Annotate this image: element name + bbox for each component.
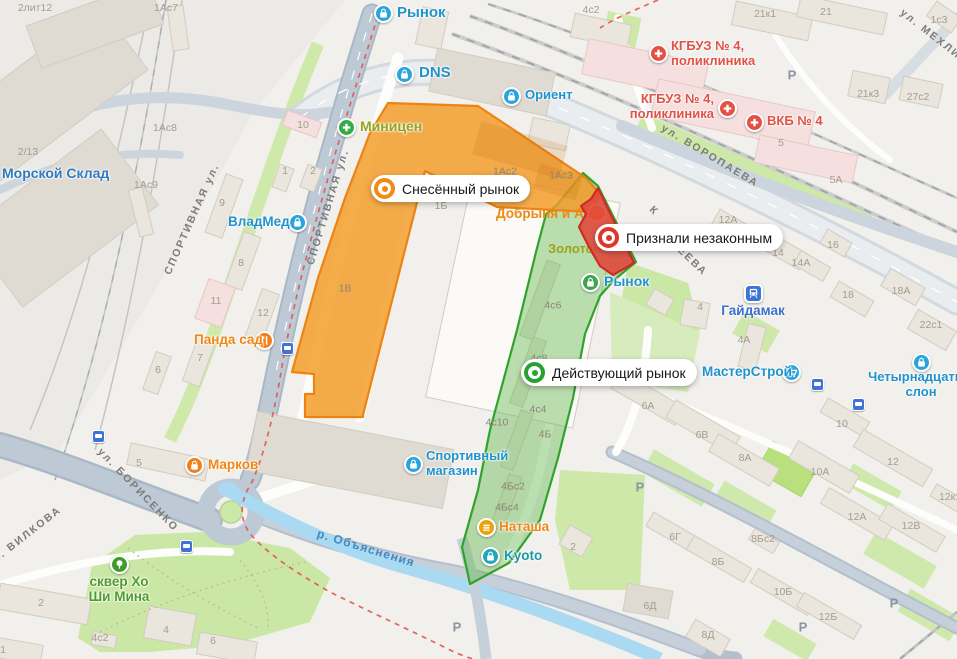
minitsen-icon[interactable] — [337, 118, 356, 137]
parking-label: Р — [890, 596, 899, 611]
target-icon — [598, 227, 619, 248]
house-number: 22с1 — [920, 319, 943, 331]
vladmed-icon[interactable] — [288, 213, 307, 232]
house-number: 2 — [38, 597, 44, 609]
morskoy-sklad-label[interactable]: Морской Склад — [2, 166, 109, 182]
house-number: 5 — [136, 457, 142, 469]
parking-label: Р — [636, 480, 645, 495]
house-number: 4с2 — [583, 4, 600, 16]
target-icon — [374, 178, 395, 199]
house-number: 16 — [827, 239, 839, 251]
building — [680, 299, 710, 329]
map-base-layer: 1Ас21Ас31В4с64с84с44с104Б4Бс24Бс4Добрыня… — [0, 0, 957, 659]
callout-label: Снесённый рынок — [402, 181, 519, 197]
house-number: 12 — [887, 456, 899, 468]
operating-market-callout[interactable]: Действующий рынок — [521, 359, 697, 386]
house-number: 2 — [570, 541, 576, 553]
house-number: 5 — [778, 137, 784, 149]
house-number: 11 — [211, 295, 222, 307]
ho-chi-minh-park-label[interactable]: сквер ХоШи Мина — [89, 574, 150, 604]
house-number: 12к1 — [939, 491, 957, 503]
orient-label[interactable]: Ориент — [525, 88, 573, 103]
house-number: 4Бс2 — [501, 481, 525, 493]
panda-sad-label[interactable]: Панда сад — [194, 332, 263, 347]
minitsen-label[interactable]: Миницен — [360, 119, 422, 135]
house-number: 6Г — [669, 531, 681, 543]
house-number: 10 — [297, 119, 309, 131]
market-top-icon[interactable] — [374, 4, 393, 23]
house-number: 8Бс2 — [751, 533, 775, 545]
kgbuz-4-upper-label[interactable]: КГБУЗ № 4,поликлиника — [671, 39, 755, 68]
house-number: 6Д — [644, 600, 657, 612]
house-number: 4 — [163, 624, 169, 636]
bus-stop-icon[interactable] — [852, 398, 865, 411]
house-number: 10А — [811, 466, 830, 478]
house-number: 1Ас9 — [134, 179, 158, 191]
house-number: 8А — [739, 452, 752, 464]
target-icon — [524, 362, 545, 383]
kgbuz-4-lower-icon[interactable] — [718, 99, 737, 118]
house-number: 4с2 — [92, 632, 109, 644]
house-number: 2/13 — [18, 146, 38, 158]
dns-label[interactable]: DNS — [419, 65, 451, 82]
house-number: 8 — [238, 257, 244, 269]
house-number: 4с6 — [545, 300, 562, 312]
vkb-4-label[interactable]: ВКБ № 4 — [767, 114, 823, 129]
house-number: 1Ас7 — [154, 2, 178, 14]
gaydamak-station-icon[interactable] — [744, 284, 763, 303]
house-number: 14А — [792, 257, 811, 269]
house-number: 12В — [902, 520, 921, 532]
map-canvas[interactable]: 1Ас21Ас31В4с64с84с44с104Б4Бс24Бс4Добрыня… — [0, 0, 957, 659]
house-number: 18А — [892, 285, 911, 297]
house-number: 21к1 — [754, 8, 776, 20]
house-number: 12 — [257, 307, 269, 319]
house-number: 1Ас3 — [549, 170, 573, 182]
market-top-label[interactable]: Рынок — [397, 5, 446, 22]
house-number: 6В — [696, 429, 709, 441]
house-number: 4с10 — [486, 417, 509, 429]
house-number: 6А — [642, 400, 655, 412]
ho-chi-minh-park-icon[interactable] — [110, 555, 129, 574]
house-number: 21к3 — [857, 88, 879, 100]
house-number: 1 — [0, 644, 6, 656]
house-number: 1 — [282, 165, 288, 177]
markov-icon[interactable] — [185, 456, 204, 475]
house-number: 8Б — [712, 556, 725, 568]
house-number: 27с2 — [907, 91, 930, 103]
callout-label: Признали незаконным — [626, 230, 772, 246]
sport-store-icon[interactable] — [404, 455, 423, 474]
parking-label: Р — [799, 620, 808, 635]
kgbuz-4-lower-label[interactable]: КГБУЗ № 4,поликлиника — [630, 92, 714, 121]
house-number: 9 — [219, 197, 225, 209]
fourteenth-slon-label[interactable]: Четырнадцатыйслон — [868, 370, 957, 399]
house-number: 1с3 — [931, 14, 948, 26]
orient-icon[interactable] — [502, 87, 521, 106]
callout-label: Действующий рынок — [552, 365, 686, 381]
house-number: 6 — [155, 364, 161, 376]
kgbuz-4-upper-icon[interactable] — [649, 44, 668, 63]
house-number: 1Ас8 — [153, 122, 177, 134]
house-number: 1В — [339, 283, 352, 295]
vladmed-label[interactable]: ВладМед — [228, 214, 290, 229]
parking-label: Р — [788, 68, 797, 83]
dns-icon[interactable] — [395, 65, 414, 84]
house-number: 7 — [197, 352, 203, 364]
kyoto-icon[interactable] — [481, 547, 500, 566]
house-number: 8Д — [702, 629, 715, 641]
vkb-4-icon[interactable] — [745, 113, 764, 132]
house-number: 4с4 — [530, 404, 547, 416]
masterstroy-label[interactable]: МастерСтрой — [702, 364, 792, 379]
house-number: 4Б — [539, 429, 552, 441]
market-center-label[interactable]: Рынок — [604, 274, 649, 290]
natasha-icon[interactable] — [477, 518, 496, 537]
bus-stop-icon[interactable] — [92, 430, 105, 443]
house-number: 4Бс4 — [495, 502, 519, 514]
demolished-market-callout[interactable]: Снесённый рынок — [371, 175, 530, 202]
kyoto-label[interactable]: Kyoto — [504, 548, 542, 563]
parking-label: Р — [453, 620, 462, 635]
house-number: 6 — [210, 635, 216, 647]
bus-stop-icon[interactable] — [180, 540, 193, 553]
market-center-icon[interactable] — [581, 273, 600, 292]
house-number: 21 — [820, 6, 832, 18]
bus-stop-icon[interactable] — [811, 378, 824, 391]
house-number: 2лит12 — [18, 2, 52, 14]
markov-label[interactable]: Марков — [208, 457, 258, 472]
house-number: 2 — [310, 165, 316, 177]
natasha-label[interactable]: Наташа — [499, 519, 549, 534]
house-number: 4 — [697, 301, 703, 313]
illegal-market-callout[interactable]: Признали незаконным — [595, 224, 783, 251]
house-number: 10Б — [774, 586, 793, 598]
house-number: 12А — [848, 511, 867, 523]
house-number: 18 — [842, 289, 854, 301]
sport-store-label[interactable]: Спортивныймагазин — [426, 449, 508, 478]
bus-stop-icon[interactable] — [281, 342, 294, 355]
house-number: 4А — [738, 334, 751, 346]
gaydamak-station-label[interactable]: Гайдамак — [721, 303, 784, 318]
house-number: 10 — [836, 418, 848, 430]
house-number: 5А — [830, 174, 843, 186]
house-number: 12Б — [819, 611, 838, 623]
